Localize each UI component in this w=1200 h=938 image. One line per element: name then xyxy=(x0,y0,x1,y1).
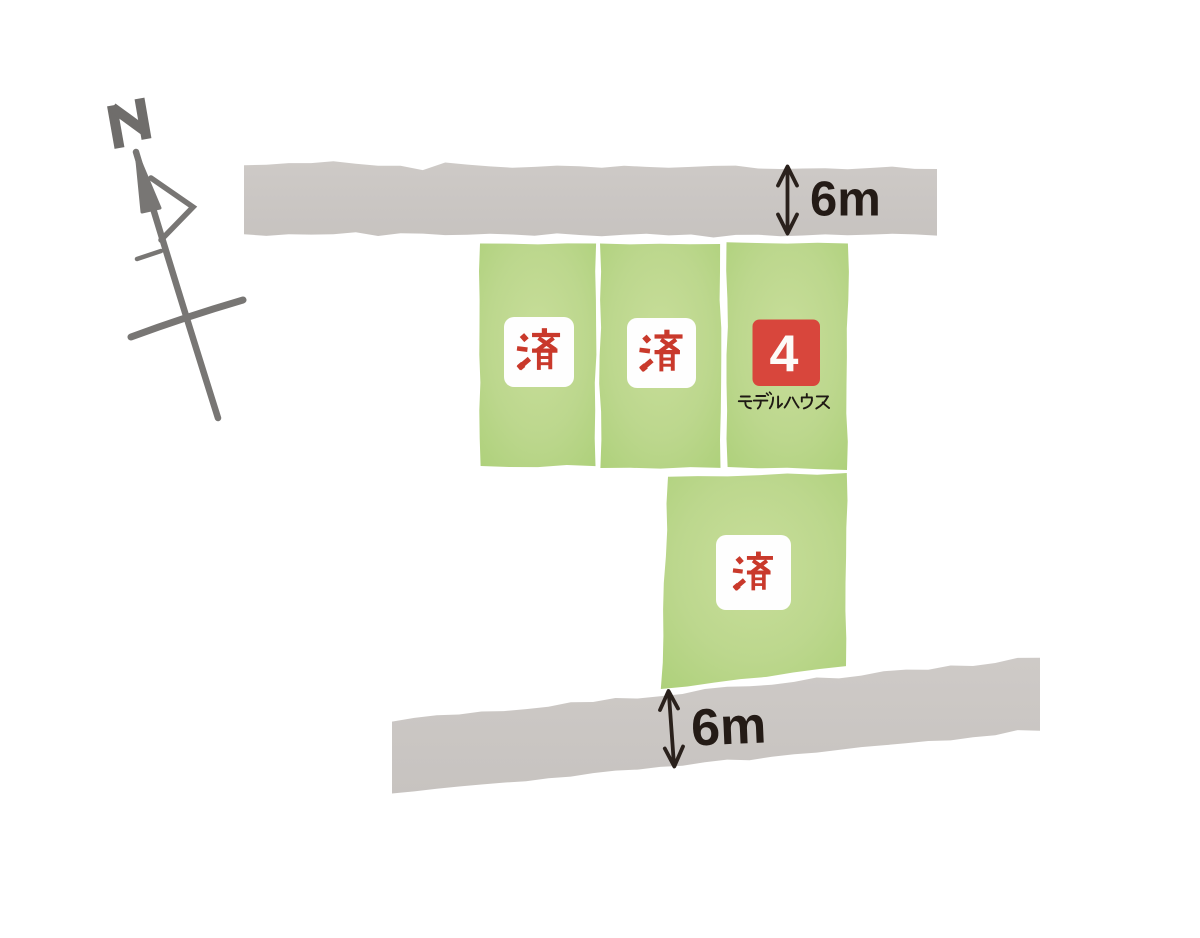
svg-text:4: 4 xyxy=(770,326,799,384)
svg-text:6m: 6m xyxy=(810,173,881,227)
svg-text:6m: 6m xyxy=(690,696,768,757)
